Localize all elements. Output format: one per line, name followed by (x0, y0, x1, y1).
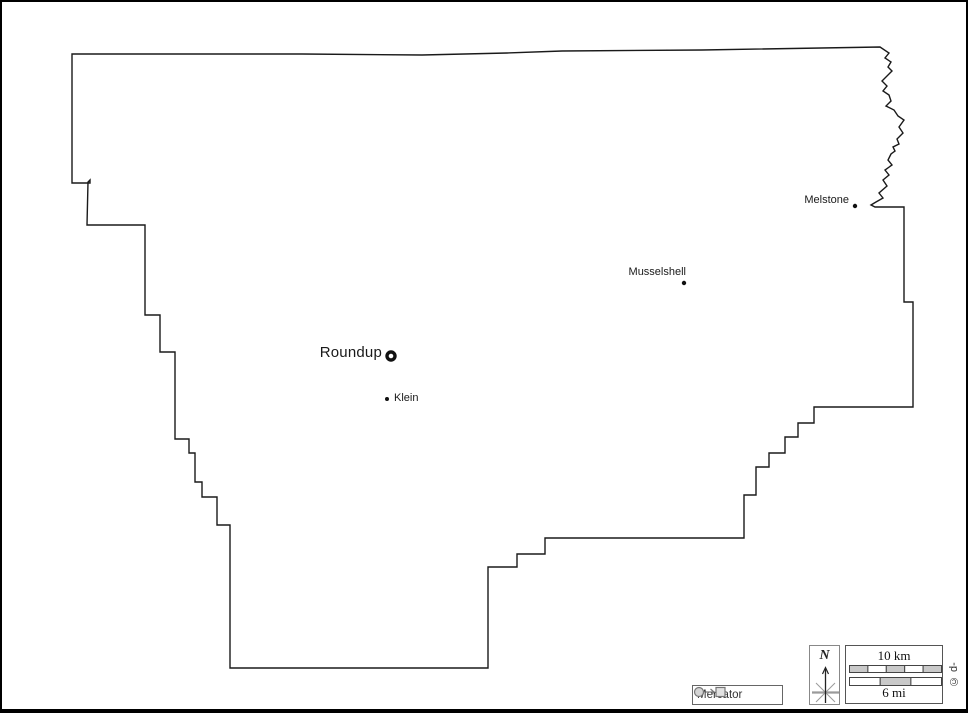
town-label-klein: Klein (394, 392, 418, 405)
north-label: N (810, 648, 839, 664)
circle-to-square-icon (693, 686, 727, 698)
county-boundary-path (72, 47, 913, 668)
projection-badge: Mercator (692, 685, 783, 705)
compass: N (809, 645, 840, 705)
km-scale-bar (850, 666, 942, 673)
map-canvas: Roundup Klein Musselshell Melstone Merca… (0, 0, 968, 713)
town-dot-klein (385, 397, 389, 401)
scale-bar: 10 km 6 mi (845, 645, 943, 704)
county-map (2, 2, 968, 713)
town-label-melstone: Melstone (749, 194, 849, 207)
town-label-musselshell: Musselshell (586, 266, 686, 279)
town-dot-musselshell (682, 281, 686, 285)
town-label-roundup: Roundup (282, 344, 382, 361)
town-dot-melstone (853, 204, 857, 208)
compass-rose-icon (810, 664, 841, 704)
mi-scale-label: 6 mi (846, 686, 942, 700)
copyright-credit: © d-maps.com (946, 639, 962, 711)
county-seat-marker-roundup (387, 352, 395, 360)
